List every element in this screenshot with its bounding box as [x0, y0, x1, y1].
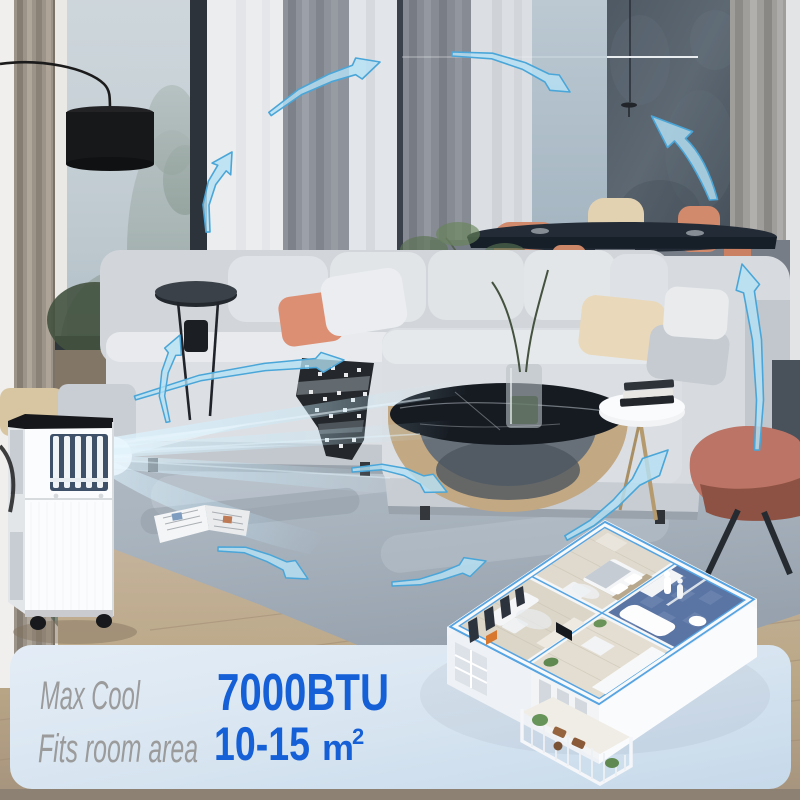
svg-text:2: 2: [352, 724, 364, 749]
svg-text:Fits room area: Fits room area: [38, 727, 198, 771]
svg-text:Max Cool: Max Cool: [40, 674, 141, 718]
svg-text:m: m: [322, 727, 354, 768]
svg-text:10-15: 10-15: [214, 717, 310, 770]
svg-text:7000BTU: 7000BTU: [217, 664, 389, 722]
